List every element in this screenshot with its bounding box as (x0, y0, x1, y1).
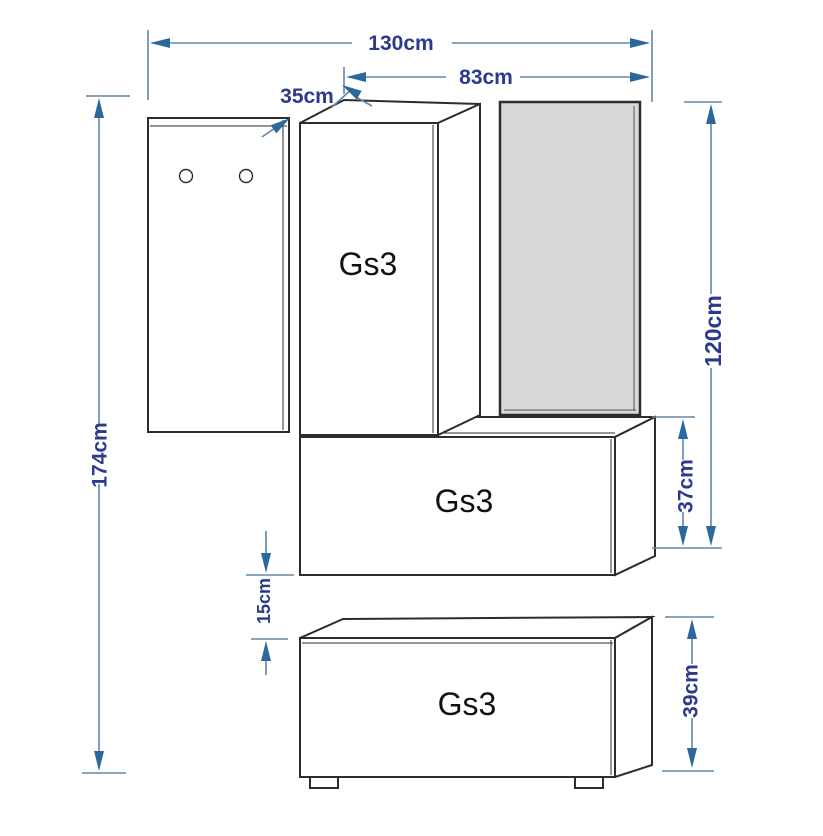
dimension-value: 120cm (700, 295, 726, 367)
hook-hole (180, 170, 193, 183)
diagram-canvas: Gs3 Gs3 Gs3 130cm (0, 0, 823, 836)
wall-cabinet-side-face (438, 104, 480, 435)
bottom-cabinet: Gs3 (300, 617, 652, 788)
bottom-cabinet-top-face (300, 617, 652, 638)
dimension-value: 174cm (89, 422, 112, 487)
arrow-up-icon (261, 641, 271, 661)
dimension-value: 39cm (680, 664, 703, 718)
bottom-cabinet-label: Gs3 (438, 686, 497, 722)
dimension-value: 130cm (368, 32, 433, 55)
dimension-value: 83cm (459, 66, 513, 89)
hook-hole (240, 170, 253, 183)
arrow-up-icon (706, 104, 716, 124)
arrow-down-icon (706, 526, 716, 546)
arrow-down-icon (678, 526, 688, 546)
arrow-left-icon (150, 38, 170, 48)
mirror-glass (500, 102, 640, 415)
arrow-left-icon (346, 72, 366, 82)
dimension-gap: 15cm (246, 531, 294, 675)
wall-cabinet: Gs3 (300, 100, 480, 435)
arrow-down-icon (94, 751, 104, 771)
mirror (500, 102, 640, 415)
dimension-value: 15cm (254, 578, 274, 624)
dimension-total-width: 130cm (148, 30, 652, 102)
middle-cabinet-side-face (615, 417, 655, 575)
bottom-cabinet-right-foot (575, 777, 603, 788)
wall-cabinet-label: Gs3 (339, 246, 398, 282)
arrow-up-left-icon (342, 85, 362, 100)
bottom-cabinet-side-face (615, 617, 652, 777)
middle-cabinet-label: Gs3 (435, 483, 494, 519)
dimension-value: 37cm (675, 459, 698, 513)
hanger-panel-board (148, 118, 289, 432)
dimension-bottom-cabinet-height: 39cm (662, 617, 714, 771)
arrow-up-icon (687, 619, 697, 639)
middle-cabinet: Gs3 (300, 417, 655, 575)
dimension-total-height: 174cm (82, 96, 130, 773)
furniture-dimension-diagram: Gs3 Gs3 Gs3 130cm (0, 0, 823, 836)
arrow-up-icon (678, 419, 688, 439)
arrow-down-icon (687, 748, 697, 768)
bottom-cabinet-left-foot (310, 777, 338, 788)
arrow-up-icon (94, 98, 104, 118)
arrow-down-icon (261, 553, 271, 573)
arrow-right-icon (630, 72, 650, 82)
hanger-panel (148, 118, 289, 432)
dimension-middle-cabinet-height: 37cm (652, 417, 698, 546)
dimension-value: 35cm (280, 85, 334, 108)
arrow-right-icon (630, 38, 650, 48)
dimension-upper-width: 83cm (344, 66, 650, 94)
